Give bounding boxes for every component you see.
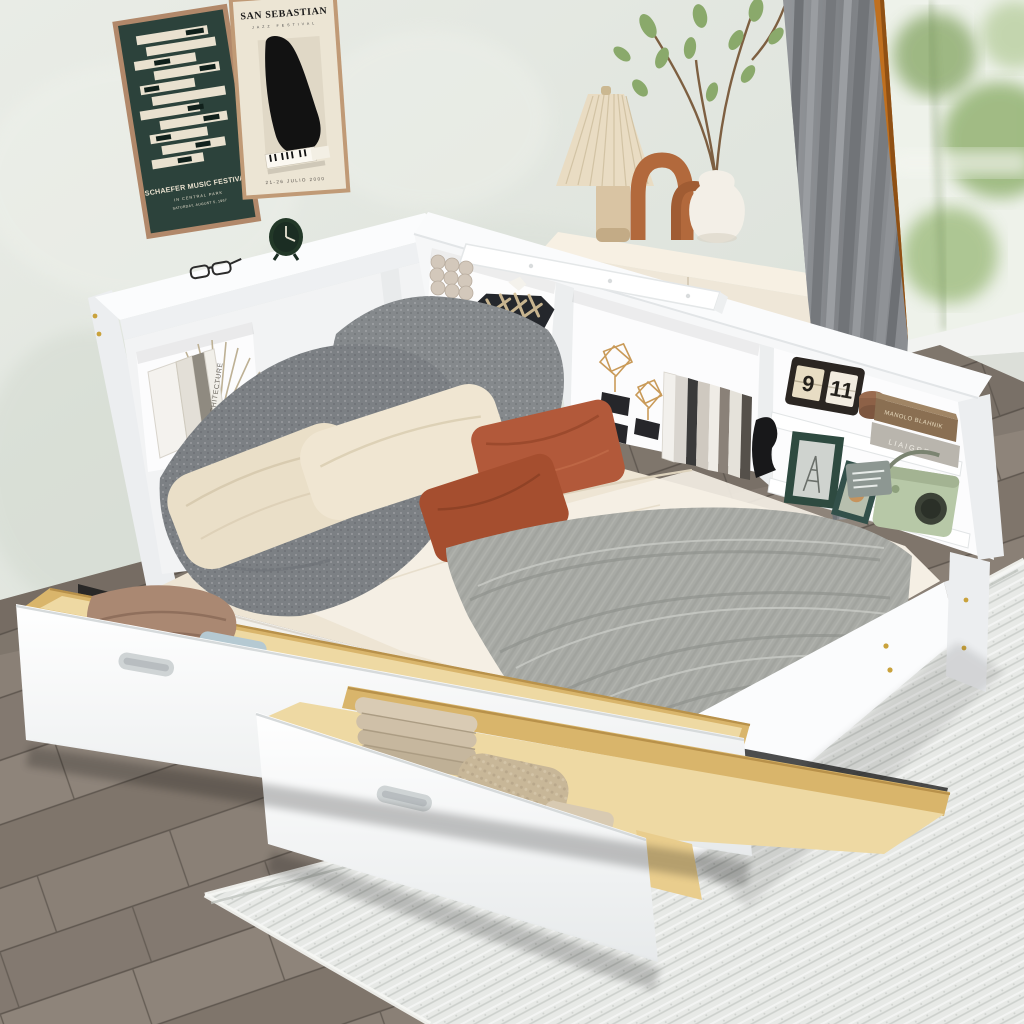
lamp-finial [601, 86, 611, 95]
vase-shadow [697, 233, 737, 243]
screw-dot [887, 667, 892, 672]
screw-dot [93, 314, 98, 319]
bubble-candle [430, 255, 473, 300]
photo-frame-eiffel [784, 431, 844, 509]
plank-screw [608, 279, 612, 283]
plank-screw [686, 294, 690, 298]
plank-screw [529, 264, 533, 268]
lamp-base-shadow [596, 228, 630, 242]
paper-tag [845, 460, 892, 498]
screw-dot [964, 598, 969, 603]
bedroom-product-photo: SCHAEFER MUSIC FESTIVAL IN CENTRAL PARK … [0, 0, 1024, 1024]
calendar-number-right: 11 [828, 375, 855, 404]
screw-dot [97, 332, 102, 337]
screw-dot [883, 643, 888, 648]
poster-san-sebastian: SAN SEBASTIAN JAZZ FESTIVAL 21-26 JULIO … [229, 0, 351, 200]
